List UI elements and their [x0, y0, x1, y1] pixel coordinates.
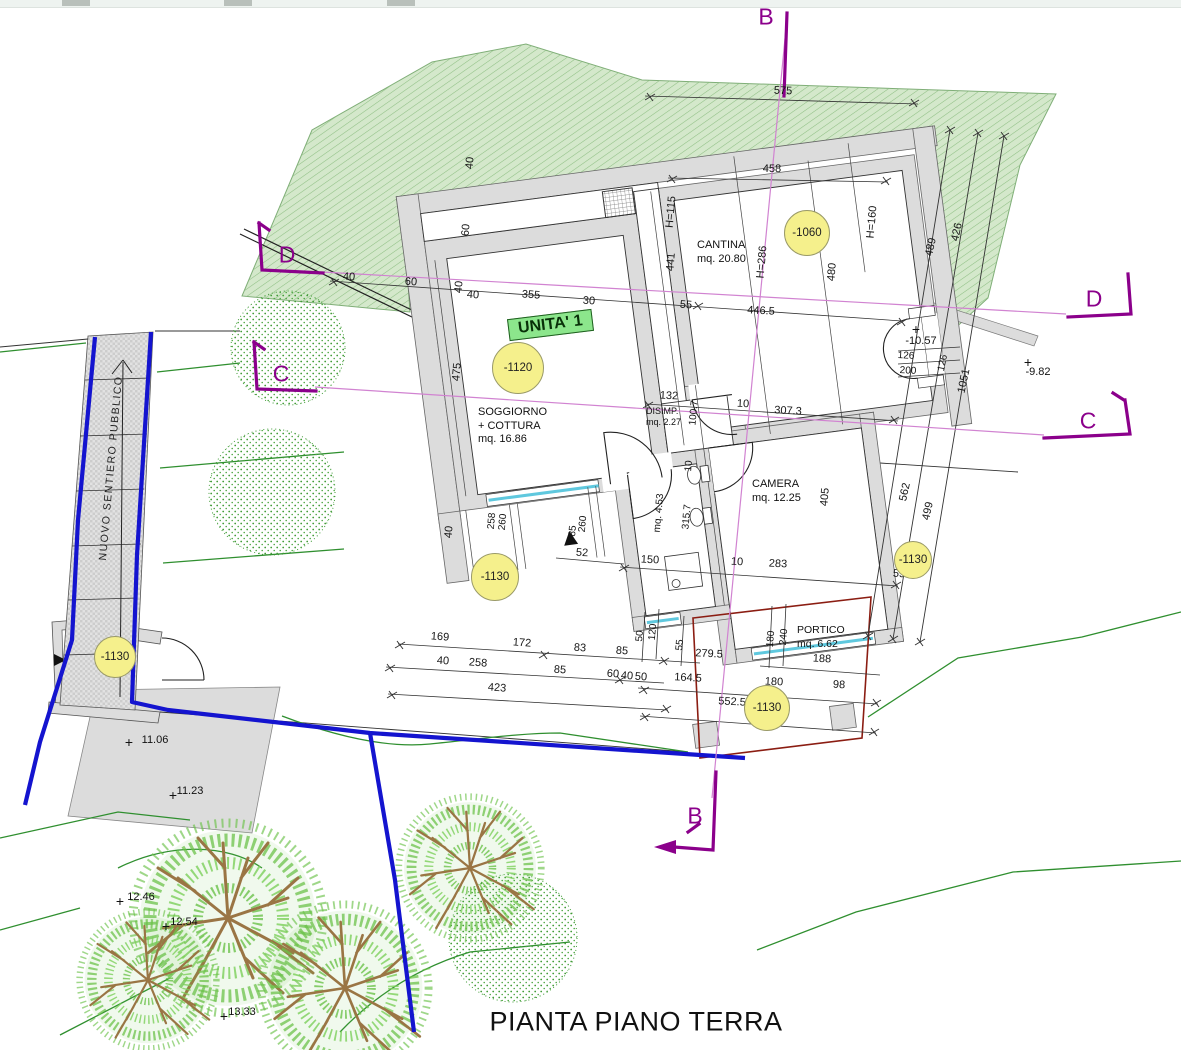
- plan-drawing: [0, 0, 1181, 1050]
- dimension-label: 446.5: [747, 304, 775, 317]
- dimension-label: 83: [573, 642, 586, 655]
- dimension-label: 279.5: [695, 647, 723, 660]
- dimension-label: 480: [825, 262, 839, 281]
- section-letter: D: [279, 242, 296, 269]
- dimension-label: 164.5: [674, 671, 702, 684]
- dimension-label: 355: [521, 288, 540, 301]
- elevation-marker: -1130: [471, 553, 519, 601]
- room-camera: [709, 428, 888, 649]
- section-letter: C: [273, 361, 290, 388]
- room-label: CAMERAmq. 12.25: [752, 478, 801, 505]
- dimension-label: 172: [512, 636, 531, 649]
- spot-elevation-label: 12.46: [127, 891, 155, 903]
- dimension-label: 315.7: [680, 504, 693, 530]
- chimney-flue: [602, 188, 635, 218]
- spot-elevation-label: -10.57: [905, 335, 936, 347]
- dimension-label: 40: [436, 655, 449, 668]
- room-label: PORTICOmq. 6.62: [797, 624, 845, 651]
- spot-elevation-label: 12.54: [170, 916, 198, 928]
- section-letter: C: [1080, 408, 1097, 435]
- dimension-label: 169: [430, 630, 449, 643]
- dimension-label: 10: [731, 556, 744, 569]
- dimension-label: 475: [450, 362, 464, 381]
- browser-tab[interactable]: [224, 0, 252, 6]
- drawing-title: PIANTA PIANO TERRA: [489, 1007, 782, 1038]
- dimension-label: 10: [683, 460, 695, 472]
- dimension-label: 55: [679, 299, 692, 312]
- elevation-marker: -1130: [744, 685, 790, 731]
- spot-elevation-label: 11.23: [177, 785, 204, 797]
- dimension-label: 458: [763, 163, 782, 175]
- dimension-label: 40: [452, 280, 465, 293]
- dimension-label: 240: [778, 628, 790, 646]
- spot-elevation-label: 13.33: [228, 1006, 256, 1018]
- dimension-label: 260: [577, 515, 589, 533]
- spot-elevation-cross: +: [125, 734, 133, 750]
- floor-plan-canvas: 5754584060H=115441H=286480H=160489426406…: [0, 0, 1181, 1050]
- dimension-label: 150: [641, 554, 660, 567]
- dimension-label: 60: [404, 276, 417, 289]
- room-label: SOGGIORNO+ COTTURAmq. 16.86: [478, 406, 547, 447]
- spot-elevation-cross: +: [162, 918, 170, 934]
- section-letter: B: [687, 803, 702, 830]
- elevation-marker: -1120: [492, 342, 544, 394]
- room-label: DISIMP.mq. 2.27: [646, 406, 681, 428]
- spot-elevation-label: 11.06: [142, 734, 169, 746]
- portico-pillar: [829, 703, 856, 730]
- dimension-label: 60: [459, 223, 472, 236]
- dimension-label: 180: [765, 630, 777, 648]
- spot-elevation-cross: +: [220, 1008, 228, 1024]
- dimension-label: 120: [647, 623, 659, 641]
- dimension-label: 132: [660, 390, 679, 403]
- dimension-label: 552.5: [718, 695, 746, 708]
- dimension-label: 52: [576, 547, 589, 560]
- section-arrow-icon: [654, 840, 676, 854]
- dimension-label: 258: [468, 656, 487, 669]
- room-label: CANTINAmq. 20.80: [697, 239, 746, 266]
- main-building: [396, 126, 1011, 778]
- dimension-label: 40: [620, 670, 633, 683]
- browser-tab[interactable]: [62, 0, 90, 6]
- elevation-marker: -1130: [894, 541, 932, 579]
- dimension-label: 40: [466, 289, 479, 302]
- dimension-label: 10: [737, 398, 750, 411]
- dimension-label: 40: [442, 525, 455, 538]
- dimension-label: 307.3: [774, 404, 802, 417]
- dimension-label: 100.7: [687, 400, 700, 426]
- elevation-marker: -1060: [784, 210, 830, 256]
- dimension-label: 85: [615, 645, 628, 658]
- dimension-label: 60: [606, 668, 619, 681]
- dimension-label: 40: [342, 271, 355, 284]
- dimension-label: 50: [634, 671, 647, 684]
- dimension-label: 283: [769, 558, 788, 571]
- dimension-label: 55: [674, 639, 686, 651]
- dimension-label: 126: [897, 350, 914, 362]
- section-letter: D: [1086, 286, 1103, 313]
- dimension-label: 423: [487, 681, 506, 694]
- dimension-label: 441: [664, 252, 678, 271]
- browser-top-strip: [0, 0, 1181, 8]
- spot-elevation-cross: +: [116, 893, 124, 909]
- dimension-label: 200: [899, 365, 916, 377]
- branch-trees: [80, 797, 542, 1050]
- spot-elevation-label: -9.82: [1025, 366, 1050, 378]
- dimension-label: 188: [813, 653, 832, 666]
- dimension-label: 40: [463, 156, 476, 169]
- dimension-label: 98: [833, 679, 846, 692]
- annex-door-arc: [162, 638, 204, 680]
- portico-pillar: [693, 721, 720, 748]
- dimension-label: 575: [774, 85, 793, 98]
- elevation-marker: -1130: [94, 636, 136, 678]
- room-soggiorno: [447, 235, 655, 494]
- dimension-label: 260: [497, 513, 509, 531]
- dimension-label: 50: [634, 630, 646, 642]
- dimension-label: 85: [553, 664, 566, 677]
- dimension-label: 30: [582, 295, 595, 308]
- dimension-label: 405: [818, 487, 832, 506]
- browser-tab[interactable]: [387, 0, 415, 6]
